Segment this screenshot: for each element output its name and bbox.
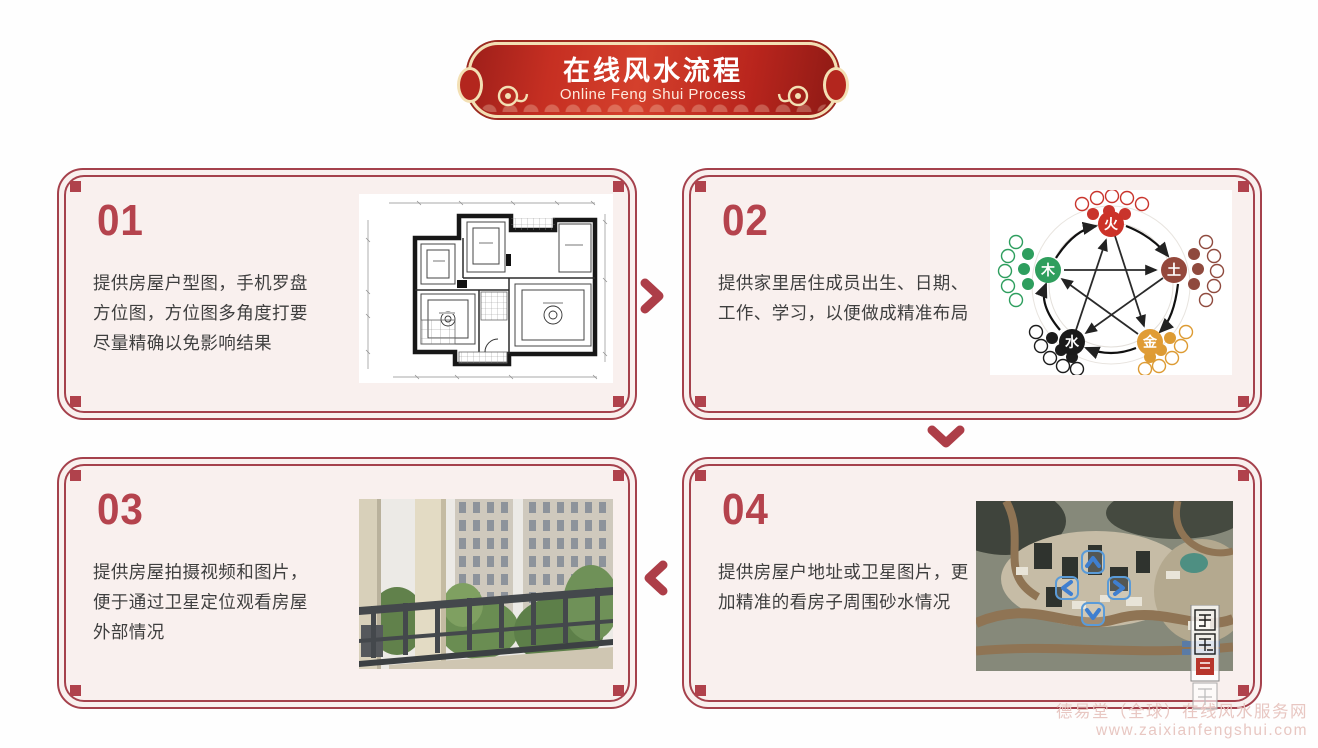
feng-shui-process-page: 在线风水流程 Online Feng Shui Process 01 提供房屋户…	[0, 0, 1318, 748]
corner-ornament	[695, 470, 706, 481]
element-fire: 火	[1104, 216, 1119, 232]
balcony-photo	[359, 499, 613, 669]
site-name: 德易堂（全球）在线风水服务网	[1056, 703, 1308, 722]
site-url: www.zaixianfengshui.com	[1056, 722, 1308, 740]
element-earth: 土	[1167, 262, 1181, 278]
corner-ornament	[613, 470, 624, 481]
element-metal: 金	[1142, 334, 1158, 350]
corner-ornament	[695, 685, 706, 696]
step-card-1: 01 提供房屋户型图，手机罗盘方位图，方位图多角度打要尽量精确以免影响结果	[57, 168, 637, 420]
seal-stamp	[1190, 605, 1220, 711]
element-wood: 木	[1040, 262, 1056, 278]
step-card-4: 04 提供房屋户地址或卫星图片，更加精准的看房子周围砂水情况	[682, 457, 1262, 709]
step-number: 01	[97, 196, 144, 246]
corner-ornament	[1238, 396, 1249, 407]
step-card-2: 02 提供家里居住成员出生、日期、工作、学习，以便做成精准布局	[682, 168, 1262, 420]
corner-ornament	[695, 181, 706, 192]
step-number: 04	[722, 485, 769, 535]
corner-ornament	[695, 396, 706, 407]
five-elements-diagram: 火 土 金 水 木	[990, 190, 1232, 375]
step-description: 提供家里居住成员出生、日期、工作、学习，以便做成精准布局	[718, 268, 986, 328]
corner-ornament	[1238, 470, 1249, 481]
element-water: 水	[1065, 334, 1080, 350]
corner-ornament	[613, 685, 624, 696]
corner-ornament	[1238, 685, 1249, 696]
chevron-left-icon	[642, 560, 670, 596]
corner-ornament	[1238, 181, 1249, 192]
page-subtitle: Online Feng Shui Process	[560, 86, 746, 104]
step-number: 03	[97, 485, 144, 535]
floor-plan-image	[359, 194, 613, 383]
corner-ornament	[70, 396, 81, 407]
chevron-down-icon	[926, 424, 966, 450]
corner-ornament	[70, 470, 81, 481]
step-description: 提供房屋户地址或卫星图片，更加精准的看房子周围砂水情况	[718, 557, 986, 617]
step-description: 提供房屋户型图，手机罗盘方位图，方位图多角度打要尽量精确以免影响结果	[93, 268, 319, 358]
step-description: 提供房屋拍摄视频和图片，便于通过卫星定位观看房屋外部情况	[93, 557, 319, 647]
corner-ornament	[613, 396, 624, 407]
chevron-right-icon	[638, 278, 666, 314]
step-number: 02	[722, 196, 769, 246]
section-banner: 在线风水流程 Online Feng Shui Process	[468, 42, 838, 118]
page-title: 在线风水流程	[563, 56, 743, 86]
corner-ornament	[613, 181, 624, 192]
step-card-3: 03 提供房屋拍摄视频和图片，便于通过卫星定位观看房屋外部情况	[57, 457, 637, 709]
corner-ornament	[70, 685, 81, 696]
site-watermark: 德易堂（全球）在线风水服务网 www.zaixianfengshui.com	[1056, 703, 1308, 740]
corner-ornament	[70, 181, 81, 192]
